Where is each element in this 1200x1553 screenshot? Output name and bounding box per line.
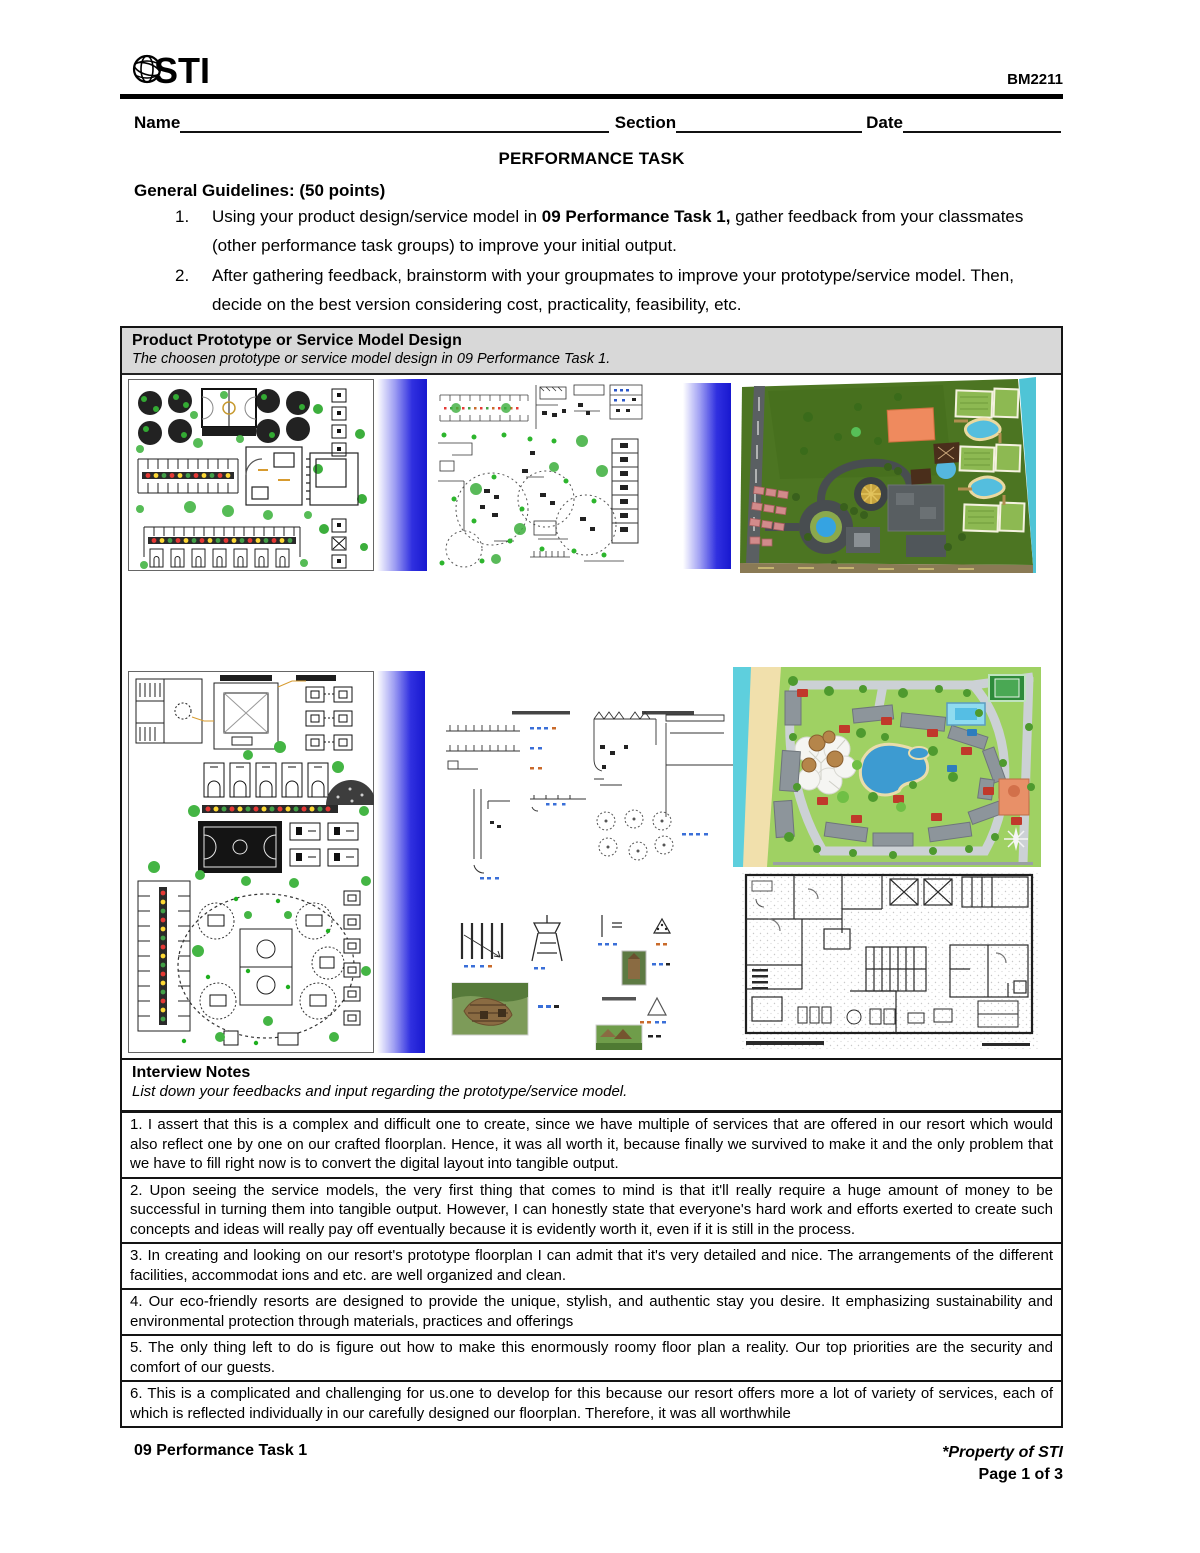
interview-notes-title: Interview Notes (132, 1064, 1051, 1082)
footer-right-block: *Property of STI Page 1 of 3 (942, 1442, 1063, 1486)
guideline-text: Using your product design/service model … (212, 202, 1063, 260)
interview-note-2: 2. Upon seeing the service models, the v… (122, 1179, 1061, 1245)
site-development-plan-2-image (434, 381, 646, 571)
performance-task-table: Product Prototype or Service Model Desig… (120, 326, 1063, 1428)
guideline-text: After gathering feedback, brainstorm wit… (212, 261, 1063, 319)
guideline-number: 1. (175, 202, 212, 260)
elevation-details-sheet-image (434, 705, 734, 1050)
page-title: PERFORMANCE TASK (120, 149, 1063, 169)
date-blank-line (903, 111, 1061, 133)
interview-note-6: 6. This is a complicated and challenging… (122, 1382, 1061, 1426)
interview-note-4: 4. Our eco-friendly resorts are designed… (122, 1290, 1061, 1336)
header-rule (120, 94, 1063, 99)
guideline-text-bold: 09 Performance Task 1, (542, 207, 731, 226)
section-blank-line (676, 111, 862, 133)
prototype-section-header: Product Prototype or Service Model Desig… (122, 328, 1061, 375)
interview-notes-subtitle: List down your feedbacks and input regar… (132, 1083, 1051, 1100)
interview-note-1: 1. I assert that this is a complex and d… (122, 1113, 1061, 1179)
blue-gradient-strip (377, 379, 427, 571)
name-section-date-row: Name Section Date (120, 111, 1063, 133)
sti-logo-text: STI (154, 50, 210, 91)
prototype-section-subtitle: The choosen prototype or service model d… (132, 351, 1051, 367)
interview-note-3: 3. In creating and looking on our resort… (122, 1244, 1061, 1290)
date-label: Date (866, 113, 903, 133)
site-development-plan-3-image (128, 671, 374, 1053)
section-label: Section (615, 113, 676, 133)
interview-note-5: 5. The only thing left to do is figure o… (122, 1336, 1061, 1382)
blue-gradient-strip (683, 383, 731, 569)
prototype-section-title: Product Prototype or Service Model Desig… (132, 332, 1051, 350)
prototype-collage (122, 375, 1061, 1058)
document-page: STI BM2211 Name Section Date PERFORMANCE… (120, 0, 1063, 1486)
footer-property-label: *Property of STI (942, 1442, 1063, 1464)
name-blank-line (180, 111, 608, 133)
course-code: BM2211 (1007, 71, 1063, 88)
footer-page-number: Page 1 of 3 (942, 1464, 1063, 1486)
blue-gradient-strip (377, 671, 425, 1053)
guideline-item-2: 2. After gathering feedback, brainstorm … (120, 261, 1063, 319)
name-label: Name (134, 113, 180, 133)
sti-logo: STI (130, 44, 212, 92)
guideline-number: 2. (175, 261, 212, 319)
page-footer: 09 Performance Task 1 *Property of STI P… (120, 1442, 1063, 1486)
ground-floor-plan-image (738, 869, 1040, 1053)
guidelines-heading: General Guidelines: (50 points) (120, 181, 1063, 201)
site-development-plan-1-image (128, 379, 374, 571)
guideline-item-1: 1. Using your product design/service mod… (120, 202, 1063, 260)
interview-notes-header: Interview Notes List down your feedbacks… (122, 1058, 1061, 1113)
footer-task-label: 09 Performance Task 1 (134, 1442, 307, 1460)
resort-master-plan-render-image (738, 377, 1036, 573)
guideline-text-pre: Using your product design/service model … (212, 207, 542, 226)
resort-map-illustration-image (733, 667, 1041, 867)
page-header: STI BM2211 (120, 44, 1063, 94)
